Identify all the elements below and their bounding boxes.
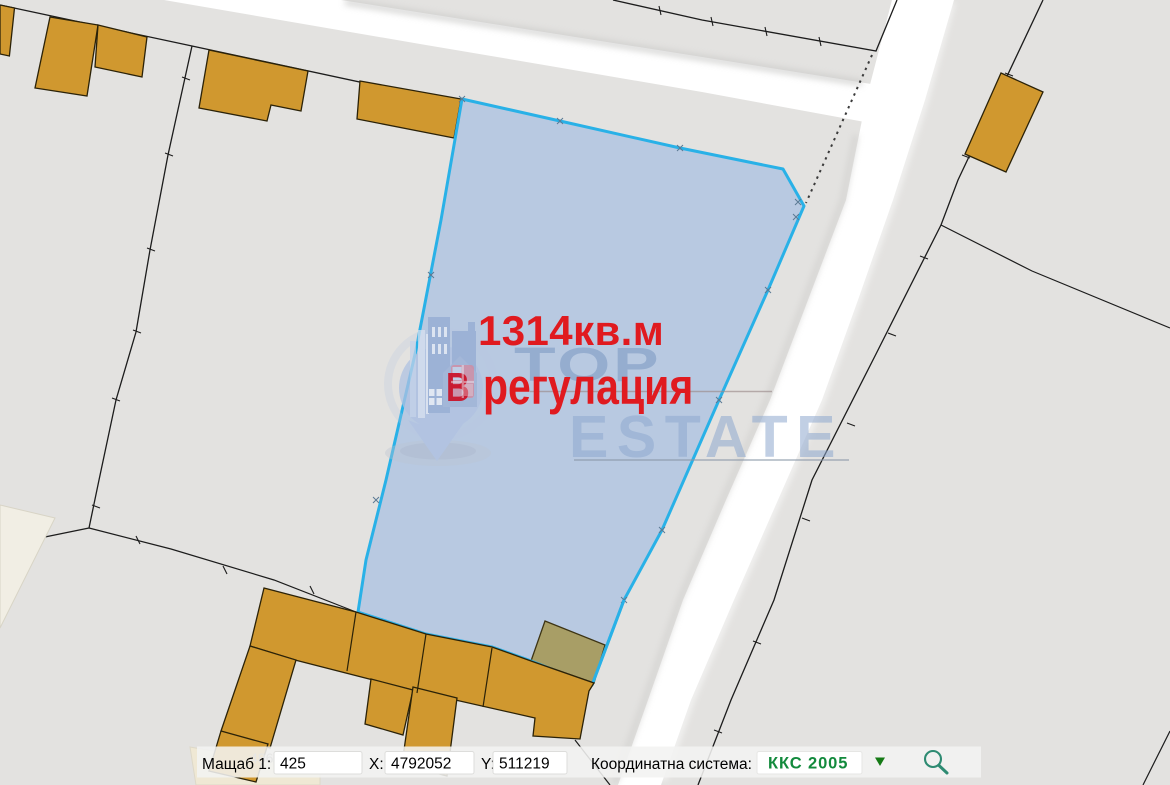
svg-text:ККС 2005: ККС 2005 bbox=[768, 755, 848, 773]
svg-text:425: 425 bbox=[280, 756, 306, 773]
svg-text:Координатна система:: Координатна система: bbox=[591, 756, 752, 773]
svg-text:X:: X: bbox=[369, 756, 384, 773]
svg-text:4792052: 4792052 bbox=[391, 756, 451, 773]
svg-text:1314кв.м: 1314кв.м bbox=[478, 307, 664, 354]
svg-text:511219: 511219 bbox=[499, 756, 550, 773]
svg-text:регулация: регулация bbox=[483, 358, 693, 415]
svg-text:Мащаб 1:: Мащаб 1: bbox=[202, 756, 271, 773]
